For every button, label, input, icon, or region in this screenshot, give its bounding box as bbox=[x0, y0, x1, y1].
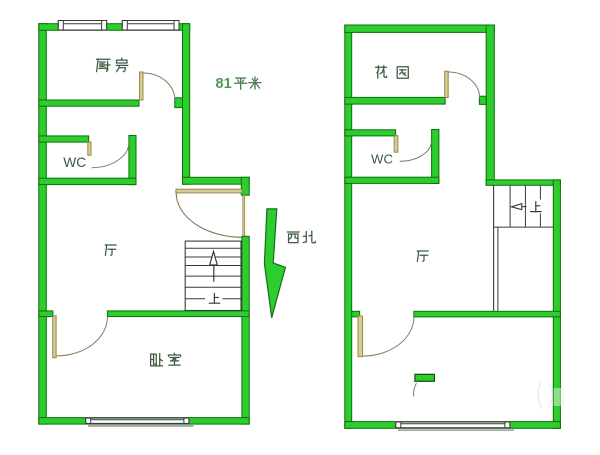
svg-text:81: 81 bbox=[216, 76, 232, 92]
svg-text:WC: WC bbox=[63, 155, 86, 170]
svg-text:WC: WC bbox=[371, 152, 393, 167]
